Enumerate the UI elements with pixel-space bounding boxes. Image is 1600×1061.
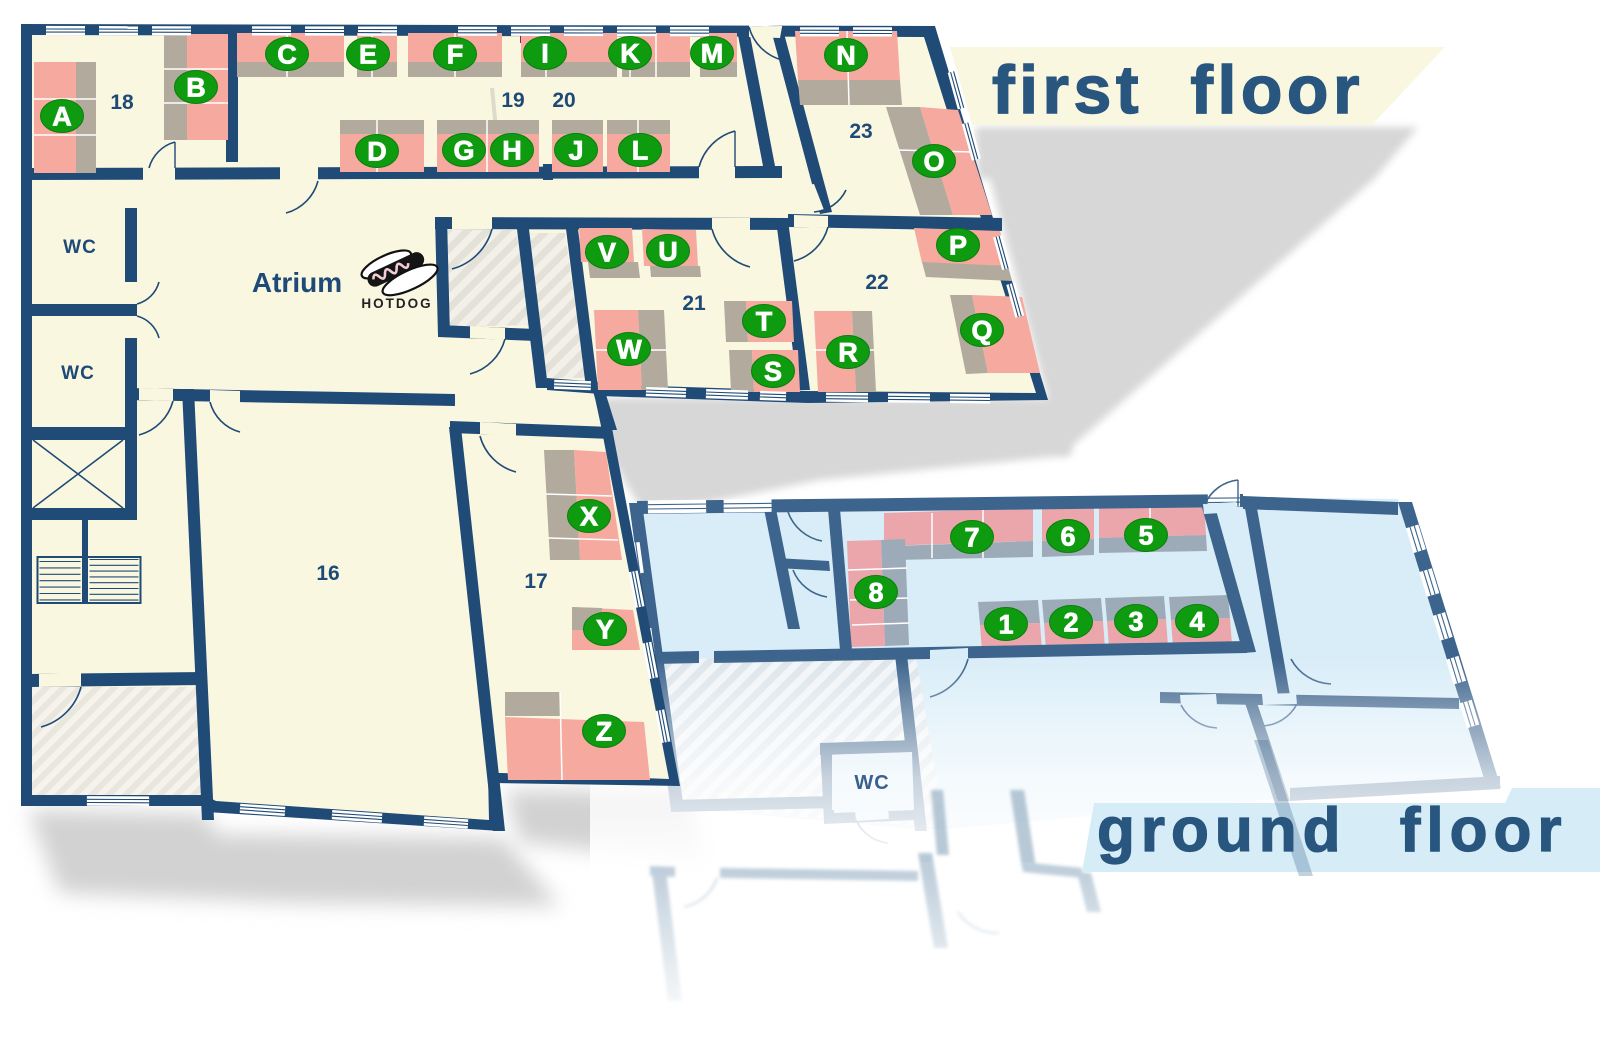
svg-text:3: 3 (1128, 607, 1143, 637)
svg-text:8: 8 (868, 578, 883, 608)
svg-text:6: 6 (1060, 522, 1075, 552)
svg-text:U: U (658, 237, 678, 267)
svg-text:18: 18 (110, 91, 134, 114)
svg-text:J: J (568, 136, 583, 166)
svg-text:P: P (949, 231, 967, 261)
svg-text:R: R (838, 338, 858, 368)
svg-text:first floor: first floor (992, 52, 1364, 128)
svg-text:F: F (447, 40, 464, 70)
svg-text:Atrium: Atrium (252, 267, 342, 298)
svg-text:L: L (632, 136, 649, 166)
svg-text:H: H (502, 136, 522, 166)
svg-text:20: 20 (552, 89, 575, 112)
svg-text:21: 21 (682, 292, 706, 315)
svg-text:X: X (580, 502, 598, 532)
svg-text:4: 4 (1189, 607, 1204, 637)
svg-text:O: O (923, 147, 944, 177)
svg-text:17: 17 (524, 570, 547, 593)
svg-text:B: B (186, 73, 206, 103)
svg-text:22: 22 (865, 271, 888, 294)
svg-text:S: S (764, 357, 782, 387)
svg-text:WC: WC (854, 772, 889, 794)
svg-text:D: D (367, 137, 387, 167)
svg-text:G: G (453, 136, 474, 166)
svg-text:Q: Q (971, 316, 992, 346)
svg-text:23: 23 (849, 120, 872, 143)
svg-text:E: E (359, 40, 377, 70)
svg-text:1: 1 (998, 610, 1013, 640)
svg-text:N: N (836, 41, 856, 71)
svg-text:T: T (756, 307, 773, 337)
svg-text:V: V (598, 238, 616, 268)
svg-text:K: K (620, 39, 640, 69)
svg-text:W: W (616, 335, 642, 365)
svg-text:7: 7 (964, 523, 979, 553)
svg-text:HOTDOG: HOTDOG (361, 296, 432, 311)
svg-text:2: 2 (1063, 608, 1078, 638)
svg-text:16: 16 (316, 562, 339, 585)
svg-text:A: A (52, 102, 72, 132)
svg-text:WC: WC (61, 363, 95, 384)
svg-text:Z: Z (596, 717, 613, 747)
svg-text:C: C (277, 40, 297, 70)
svg-text:WC: WC (63, 237, 97, 258)
svg-text:Y: Y (596, 615, 614, 645)
svg-text:I: I (541, 39, 549, 69)
svg-text:19: 19 (501, 89, 524, 112)
svg-text:M: M (701, 39, 724, 69)
svg-text:5: 5 (1138, 521, 1153, 551)
svg-text:ground floor: ground floor (1097, 796, 1567, 865)
